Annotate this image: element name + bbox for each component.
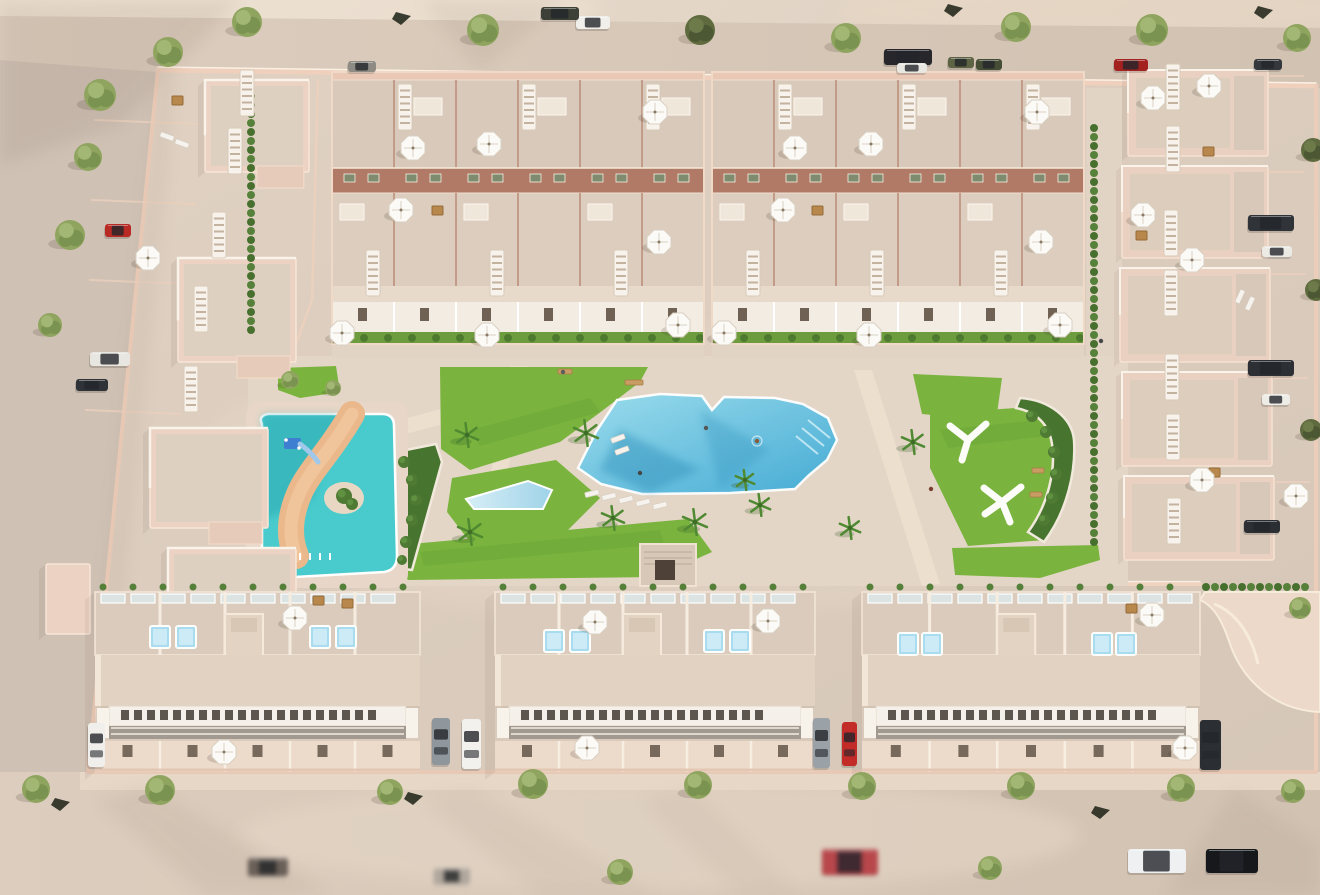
roof-box [720,204,744,220]
window [996,174,1007,182]
glass-railing [1108,594,1132,603]
window [1044,710,1052,720]
window [742,710,750,720]
roof-stair-ladder [240,70,254,116]
window [212,710,220,720]
roof-stair-ladder [490,250,504,296]
parked-car [575,16,610,31]
patio-table [172,96,183,105]
window [901,710,909,720]
roof-stair-ladder [194,286,208,332]
person [561,370,565,374]
glass-railing [868,594,892,603]
parked-car [75,379,108,393]
glass-railing [1018,594,1042,603]
patio-table [313,596,324,605]
window [134,710,142,720]
roof-stair-ladder [1167,498,1181,544]
window [547,710,555,720]
glass-railing [898,594,922,603]
rooftop-jacuzzi [570,630,590,652]
roof-box [464,204,488,220]
rooftop-jacuzzi [730,630,750,652]
door [1094,745,1104,757]
window [342,710,350,720]
roof-stair-ladder [1166,126,1180,172]
glass-railing [1048,594,1072,603]
roof-stair-ladder [184,366,198,412]
patio-table [342,599,353,608]
bench [1030,492,1042,497]
door [778,745,788,757]
window [972,174,983,182]
window [238,710,246,720]
window [1135,710,1143,720]
window [368,174,379,182]
window [199,710,207,720]
patio-table [432,206,443,215]
window [368,710,376,720]
parked-car [461,719,481,771]
parked-car [1205,849,1258,875]
bush [1038,514,1050,526]
window [530,174,541,182]
window [848,174,859,182]
window [521,710,529,720]
window [121,710,129,720]
glass-railing [101,594,125,603]
rooftop-jacuzzi [704,630,724,652]
window [468,174,479,182]
window [678,174,689,182]
bush [406,474,418,486]
parked-car [87,723,105,769]
apartment-building [171,258,296,378]
window [492,174,503,182]
parked-car [104,224,131,239]
door [482,308,491,321]
window [160,710,168,720]
door [123,745,133,757]
window [406,174,417,182]
roof-stair-ladder [1166,414,1180,460]
bush [400,536,412,548]
window [251,710,259,720]
roof-stair-ladder [994,250,1008,296]
door [650,745,660,757]
window [979,710,987,720]
parked-car [1199,720,1221,772]
door [253,745,263,757]
person [638,471,642,475]
bush [1048,446,1060,458]
door [924,308,933,321]
lagoon-pool [578,394,837,494]
window [1122,710,1130,720]
bush [1050,468,1062,480]
door [986,308,995,321]
door [318,745,328,757]
window [625,710,633,720]
parked-car [89,352,130,368]
glass-railing [681,594,705,603]
park-ramp [640,544,696,586]
window [277,710,285,720]
window [616,174,627,182]
window [316,710,324,720]
window [344,174,355,182]
parked-car [812,718,830,770]
door [606,308,615,321]
window [1057,710,1065,720]
glass-railing [591,594,615,603]
window [329,710,337,720]
window [786,174,797,182]
window [430,174,441,182]
window [560,710,568,720]
door [958,745,968,757]
window [953,710,961,720]
window [872,174,883,182]
glass-railing [1078,594,1102,603]
window [264,710,272,720]
door [1026,745,1036,757]
door [800,308,809,321]
roof-box [794,98,822,115]
glass-railing [928,594,952,603]
window [748,174,759,182]
roof-stair-ladder [902,84,916,130]
door [714,745,724,757]
glass-railing [161,594,185,603]
parked-car [431,718,450,767]
roof-box [918,98,946,115]
glass-railing [958,594,982,603]
window [592,174,603,182]
door [738,308,747,321]
roof-box [414,98,442,115]
window [910,174,921,182]
window [755,710,763,720]
window [934,174,945,182]
apartment-building [143,428,268,544]
roof-stair-ladder [778,84,792,130]
rooftop-jacuzzi [150,626,170,648]
bush [1026,410,1038,422]
aerial-render-stage [0,0,1320,895]
rooftop-jacuzzi [310,626,330,648]
window [966,710,974,720]
door [383,745,393,757]
glass-railing [281,594,305,603]
patio-table [812,206,823,215]
window [810,174,821,182]
parked-car [540,7,579,22]
glass-railing [1168,594,1192,603]
window [724,174,735,182]
roof-stair-ladder [1165,354,1179,400]
window [147,710,155,720]
parked-car [1247,215,1294,233]
window [225,710,233,720]
window [1083,710,1091,720]
glass-railing [561,594,585,603]
glass-railing [741,594,765,603]
bush [346,498,358,510]
window [1070,710,1078,720]
rooftop-jacuzzi [898,633,918,655]
rooftop-jacuzzi [1116,633,1136,655]
window [651,710,659,720]
parked-car [1261,246,1292,259]
roof-stair-ladder [1164,270,1178,316]
residential-complex-aerial-render [0,0,1320,895]
window [1034,174,1045,182]
parked-car [1127,849,1186,875]
parked-car [1247,360,1294,378]
passage-door [655,560,675,580]
roof-box [588,204,612,220]
window [290,710,298,720]
window [690,710,698,720]
window [716,710,724,720]
roof-stair-ladder [614,250,628,296]
bush [410,494,422,506]
glass-railing [131,594,155,603]
window [1096,710,1104,720]
glass-railing [371,594,395,603]
window [940,710,948,720]
glass-railing [531,594,555,603]
roof-box [844,204,868,220]
glass-railing [1138,594,1162,603]
parked-car [1243,520,1280,535]
roof-box [968,204,992,220]
window [1148,710,1156,720]
patio-table [1126,604,1137,613]
rooftop-jacuzzi [922,633,942,655]
window [664,710,672,720]
window [1018,710,1026,720]
glass-railing [251,594,275,603]
glass-railing [501,594,525,603]
window [654,174,665,182]
parked-car [821,849,878,877]
person [929,487,933,491]
parked-car [247,858,288,878]
window [1005,710,1013,720]
parked-car [896,63,927,75]
parked-car [347,61,376,74]
window [1031,710,1039,720]
window [1109,710,1117,720]
window [729,710,737,720]
patio-table [1203,147,1214,156]
bush [406,514,418,526]
glass-railing [988,594,1012,603]
rooftop-jacuzzi [544,630,564,652]
window [703,710,711,720]
window [534,710,542,720]
door [188,745,198,757]
roof-stair-ladder [366,250,380,296]
window [1058,174,1069,182]
roof-stair-ladder [1164,210,1178,256]
roof-stair-ladder [746,250,760,296]
bush [397,555,407,565]
window [173,710,181,720]
glass-railing [191,594,215,603]
door [358,308,367,321]
window [573,710,581,720]
roof-stair-ladder [1166,64,1180,110]
roof-stair-ladder [870,250,884,296]
apartment-building [39,564,90,640]
window [927,710,935,720]
door [544,308,553,321]
roof-stair-ladder [522,84,536,130]
door [522,745,532,757]
parked-car [1113,59,1148,73]
bench [625,380,643,385]
bench [1032,468,1044,473]
door [891,745,901,757]
roof-stair-ladder [212,212,226,258]
window [677,710,685,720]
door [420,308,429,321]
glass-railing [711,594,735,603]
glass-railing [651,594,675,603]
rooftop-jacuzzi [336,626,356,648]
bush [1046,492,1058,504]
door [862,308,871,321]
person [704,426,708,430]
window [554,174,565,182]
window [992,710,1000,720]
glass-railing [621,594,645,603]
window [303,710,311,720]
patio-table [1136,231,1147,240]
roof-box [340,204,364,220]
glass-railing [771,594,795,603]
window [914,710,922,720]
window [599,710,607,720]
bush [1040,426,1052,438]
rooftop-jacuzzi [1092,633,1112,655]
window [612,710,620,720]
roof-box [538,98,566,115]
window [888,710,896,720]
townhouse-block-south [85,584,420,781]
window [186,710,194,720]
parked-car [433,868,470,886]
parked-car [975,59,1002,72]
roof-stair-ladder [398,84,412,130]
parked-car [1261,394,1290,407]
rooftop-jacuzzi [176,626,196,648]
parked-car [947,57,974,70]
bush [398,456,410,468]
window [355,710,363,720]
roof-stair-ladder [228,128,242,174]
parked-car [841,722,857,768]
person [1099,339,1103,343]
parked-car [1253,59,1282,72]
window [586,710,594,720]
window [638,710,646,720]
